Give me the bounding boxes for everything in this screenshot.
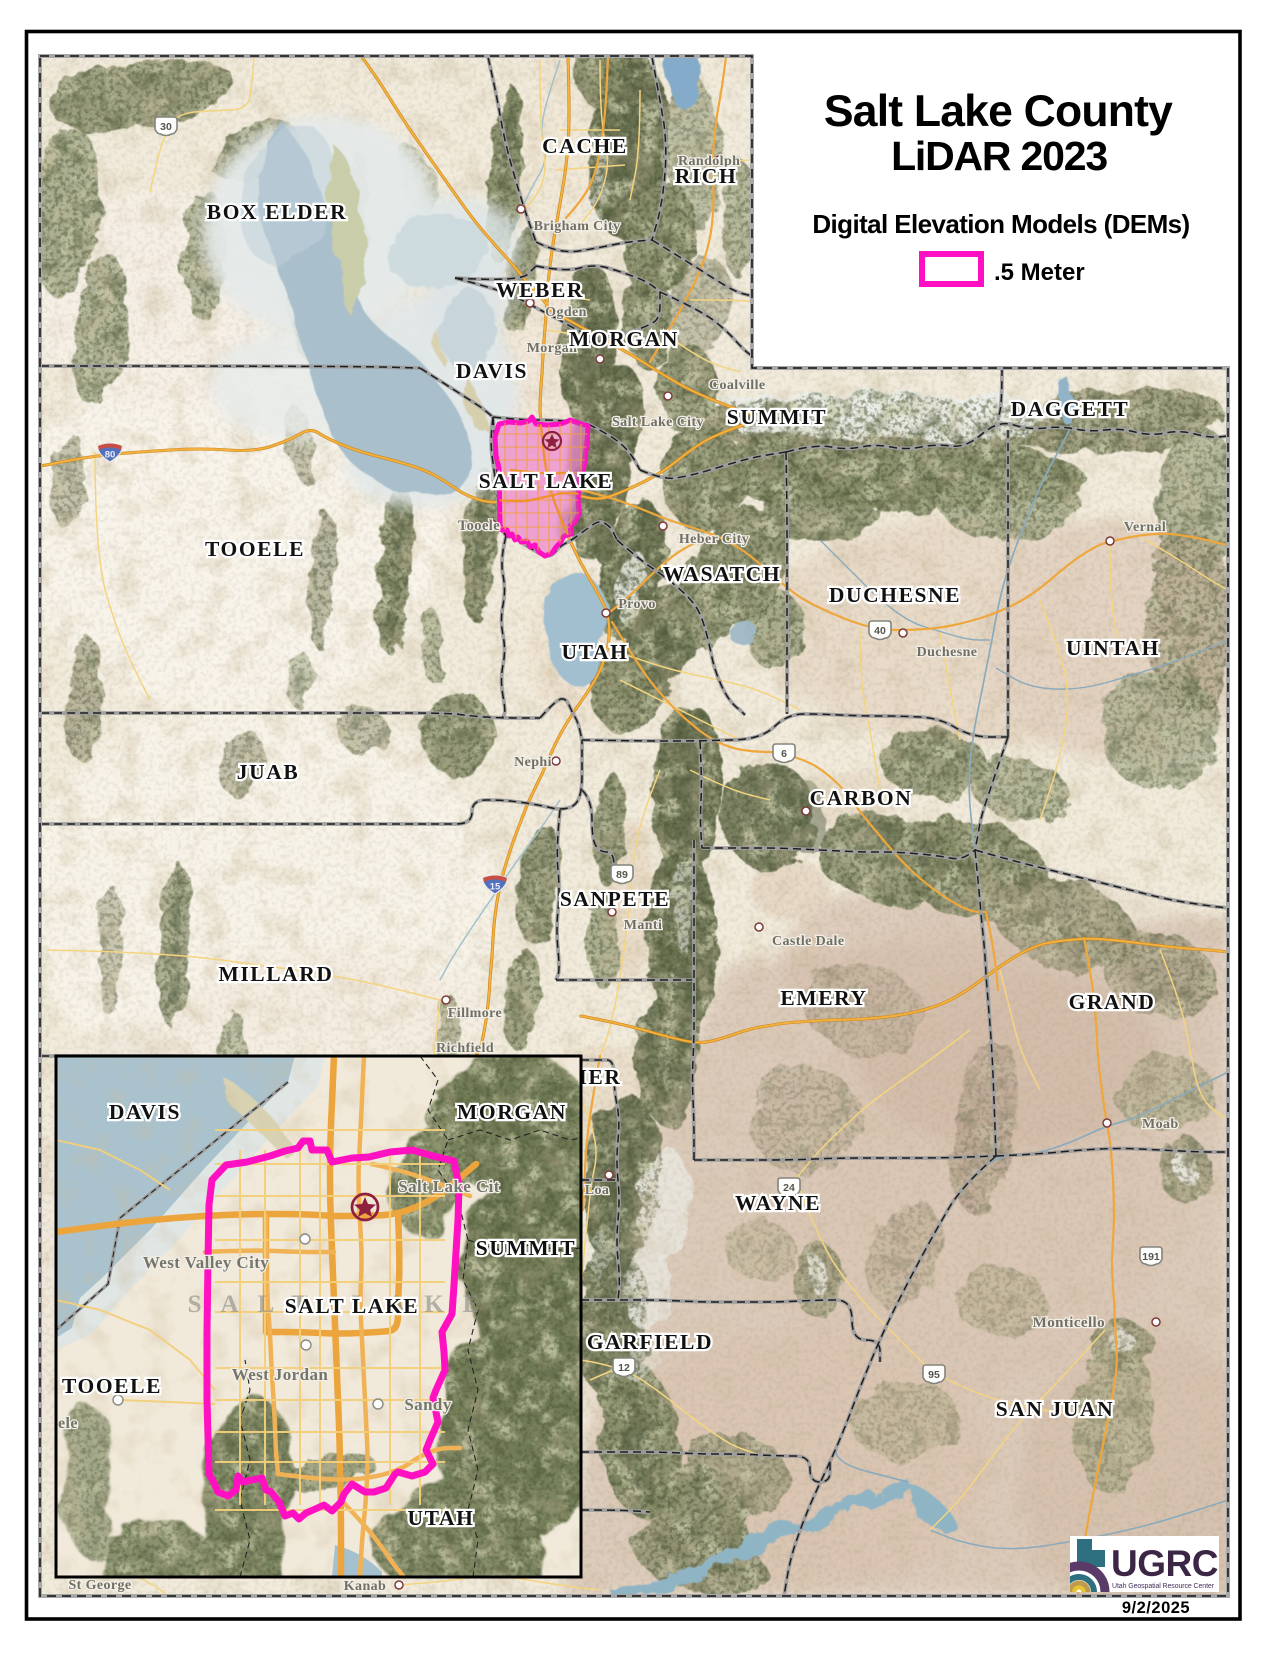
svg-text:Utah Geospatial Resource Cente: Utah Geospatial Resource Center xyxy=(1112,1583,1215,1590)
svg-text:80: 80 xyxy=(105,450,116,461)
svg-text:191: 191 xyxy=(1142,1251,1160,1263)
svg-text:JUAB: JUAB xyxy=(237,760,300,784)
svg-text:SUMMIT: SUMMIT xyxy=(727,405,827,429)
svg-text:Richfield: Richfield xyxy=(436,1041,494,1056)
svg-text:SUMMIT: SUMMIT xyxy=(476,1236,576,1260)
svg-text:CACHE: CACHE xyxy=(542,134,628,158)
svg-text:Brigham City: Brigham City xyxy=(534,219,621,234)
svg-text:UTAH: UTAH xyxy=(408,1506,475,1530)
svg-text:Nephi: Nephi xyxy=(514,755,552,770)
svg-text:Salt Lake County: Salt Lake County xyxy=(824,87,1173,136)
svg-text:WAYNE: WAYNE xyxy=(735,1191,821,1215)
svg-text:Vernal: Vernal xyxy=(1124,520,1166,535)
svg-text:BOX ELDER: BOX ELDER xyxy=(207,200,347,224)
svg-text:RICH: RICH xyxy=(675,164,738,188)
svg-text:Tooele: Tooele xyxy=(458,518,500,534)
svg-text:95: 95 xyxy=(928,1369,940,1381)
svg-text:40: 40 xyxy=(874,625,886,637)
svg-text:GRAND: GRAND xyxy=(1069,990,1156,1014)
svg-text:West Jordan: West Jordan xyxy=(232,1365,329,1384)
svg-text:Moab: Moab xyxy=(1142,1117,1179,1132)
svg-text:UTAH: UTAH xyxy=(562,640,629,664)
svg-text:Castle Dale: Castle Dale xyxy=(772,934,844,949)
svg-text:MORGAN: MORGAN xyxy=(569,327,679,351)
svg-text:Heber City: Heber City xyxy=(679,532,749,547)
svg-text:15: 15 xyxy=(490,882,501,893)
svg-text:Loa: Loa xyxy=(585,1183,610,1198)
svg-text:Duchesne: Duchesne xyxy=(917,645,978,660)
svg-text:DAVIS: DAVIS xyxy=(109,1100,181,1124)
svg-text:UGRC: UGRC xyxy=(1111,1543,1218,1584)
svg-text:GARFIELD: GARFIELD xyxy=(587,1330,713,1354)
svg-text:9/2/2025: 9/2/2025 xyxy=(1122,1599,1190,1617)
svg-text:Coalville: Coalville xyxy=(709,378,765,393)
svg-text:SAN JUAN: SAN JUAN xyxy=(996,1397,1115,1421)
svg-text:Fillmore: Fillmore xyxy=(448,1006,502,1021)
svg-text:Monticello: Monticello xyxy=(1033,1315,1105,1331)
svg-text:SALT LAKE: SALT LAKE xyxy=(285,1294,420,1318)
svg-text:UINTAH: UINTAH xyxy=(1066,636,1160,660)
svg-text:MILLARD: MILLARD xyxy=(218,962,333,986)
svg-text:Digital Elevation Models (DEMs: Digital Elevation Models (DEMs) xyxy=(812,209,1189,239)
svg-text:St George: St George xyxy=(68,1578,131,1593)
svg-text:Salt Lake City: Salt Lake City xyxy=(612,415,704,430)
svg-text:MORGAN: MORGAN xyxy=(457,1100,567,1124)
svg-text:SALT LAKE: SALT LAKE xyxy=(479,469,614,493)
svg-text:SANPETE: SANPETE xyxy=(560,887,670,911)
svg-text:IER: IER xyxy=(578,1065,621,1089)
svg-text:Sandy: Sandy xyxy=(404,1395,451,1414)
svg-text:WEBER: WEBER xyxy=(496,278,584,302)
svg-text:TOOELE: TOOELE xyxy=(205,537,305,561)
svg-text:DAGGETT: DAGGETT xyxy=(1011,397,1130,421)
svg-text:ele: ele xyxy=(58,1415,78,1432)
svg-text:89: 89 xyxy=(616,869,628,881)
svg-text:30: 30 xyxy=(160,121,172,133)
svg-text:CARBON: CARBON xyxy=(810,786,913,810)
svg-text:WASATCH: WASATCH xyxy=(663,562,781,586)
svg-text:EMERY: EMERY xyxy=(780,986,867,1010)
svg-text:Provo: Provo xyxy=(618,597,656,612)
svg-text:.5 Meter: .5 Meter xyxy=(994,259,1085,286)
svg-text:12: 12 xyxy=(618,1362,630,1374)
svg-text:LiDAR 2023: LiDAR 2023 xyxy=(891,133,1107,179)
svg-text:Kanab: Kanab xyxy=(344,1579,386,1594)
svg-text:Salt Lake Cit: Salt Lake Cit xyxy=(398,1177,500,1196)
svg-text:West Valley City: West Valley City xyxy=(143,1253,269,1272)
svg-text:DAVIS: DAVIS xyxy=(456,359,528,383)
svg-text:DUCHESNE: DUCHESNE xyxy=(829,583,961,607)
svg-text:Ogden: Ogden xyxy=(545,305,587,320)
svg-text:6: 6 xyxy=(781,748,787,760)
svg-text:TOOELE: TOOELE xyxy=(62,1374,162,1398)
svg-text:Manti: Manti xyxy=(624,918,663,933)
